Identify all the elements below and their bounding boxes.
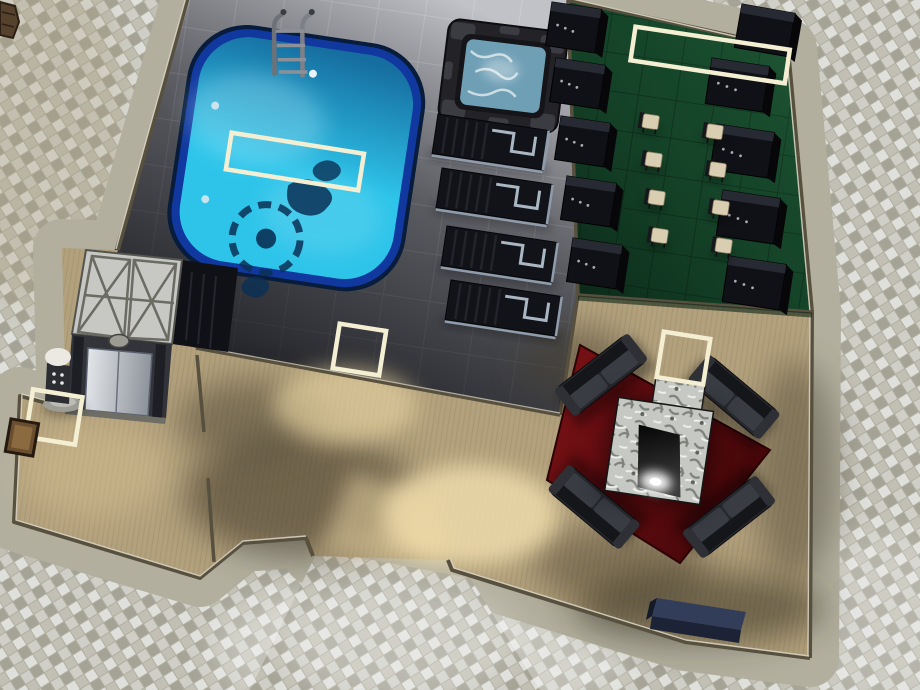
wooden-sign[interactable]	[5, 419, 38, 456]
elevator-emblem	[109, 335, 129, 348]
call-post-cap	[45, 348, 71, 366]
call-post-body	[45, 363, 71, 404]
elevator-shaft-side	[172, 260, 238, 352]
game-viewport: gym-wall-machine	[0, 0, 920, 690]
fireplace[interactable]	[598, 373, 723, 512]
